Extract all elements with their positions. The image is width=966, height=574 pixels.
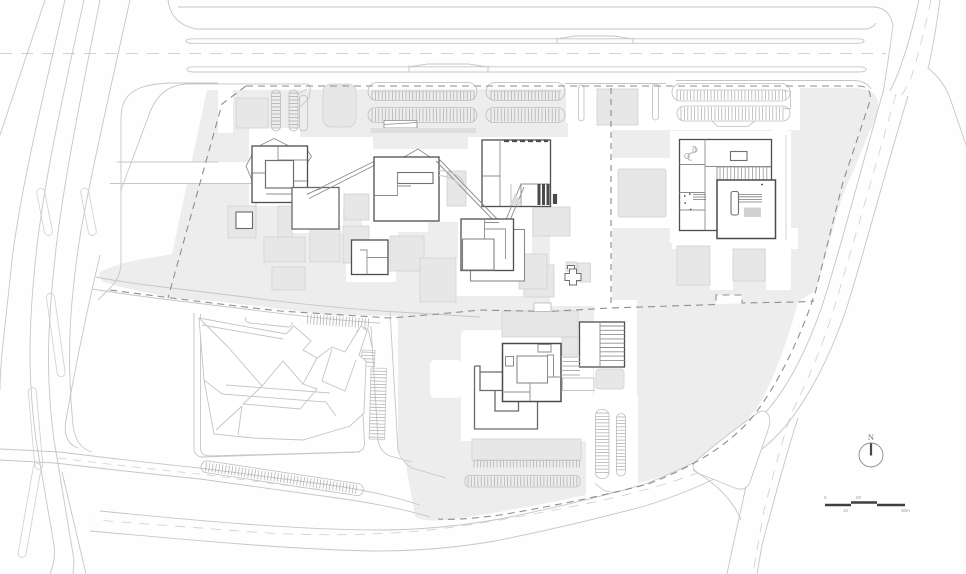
svg-text:30m: 30m [901,508,910,513]
svg-text:N: N [868,432,874,442]
svg-text:10: 10 [843,508,849,513]
svg-text:20: 20 [856,495,862,500]
